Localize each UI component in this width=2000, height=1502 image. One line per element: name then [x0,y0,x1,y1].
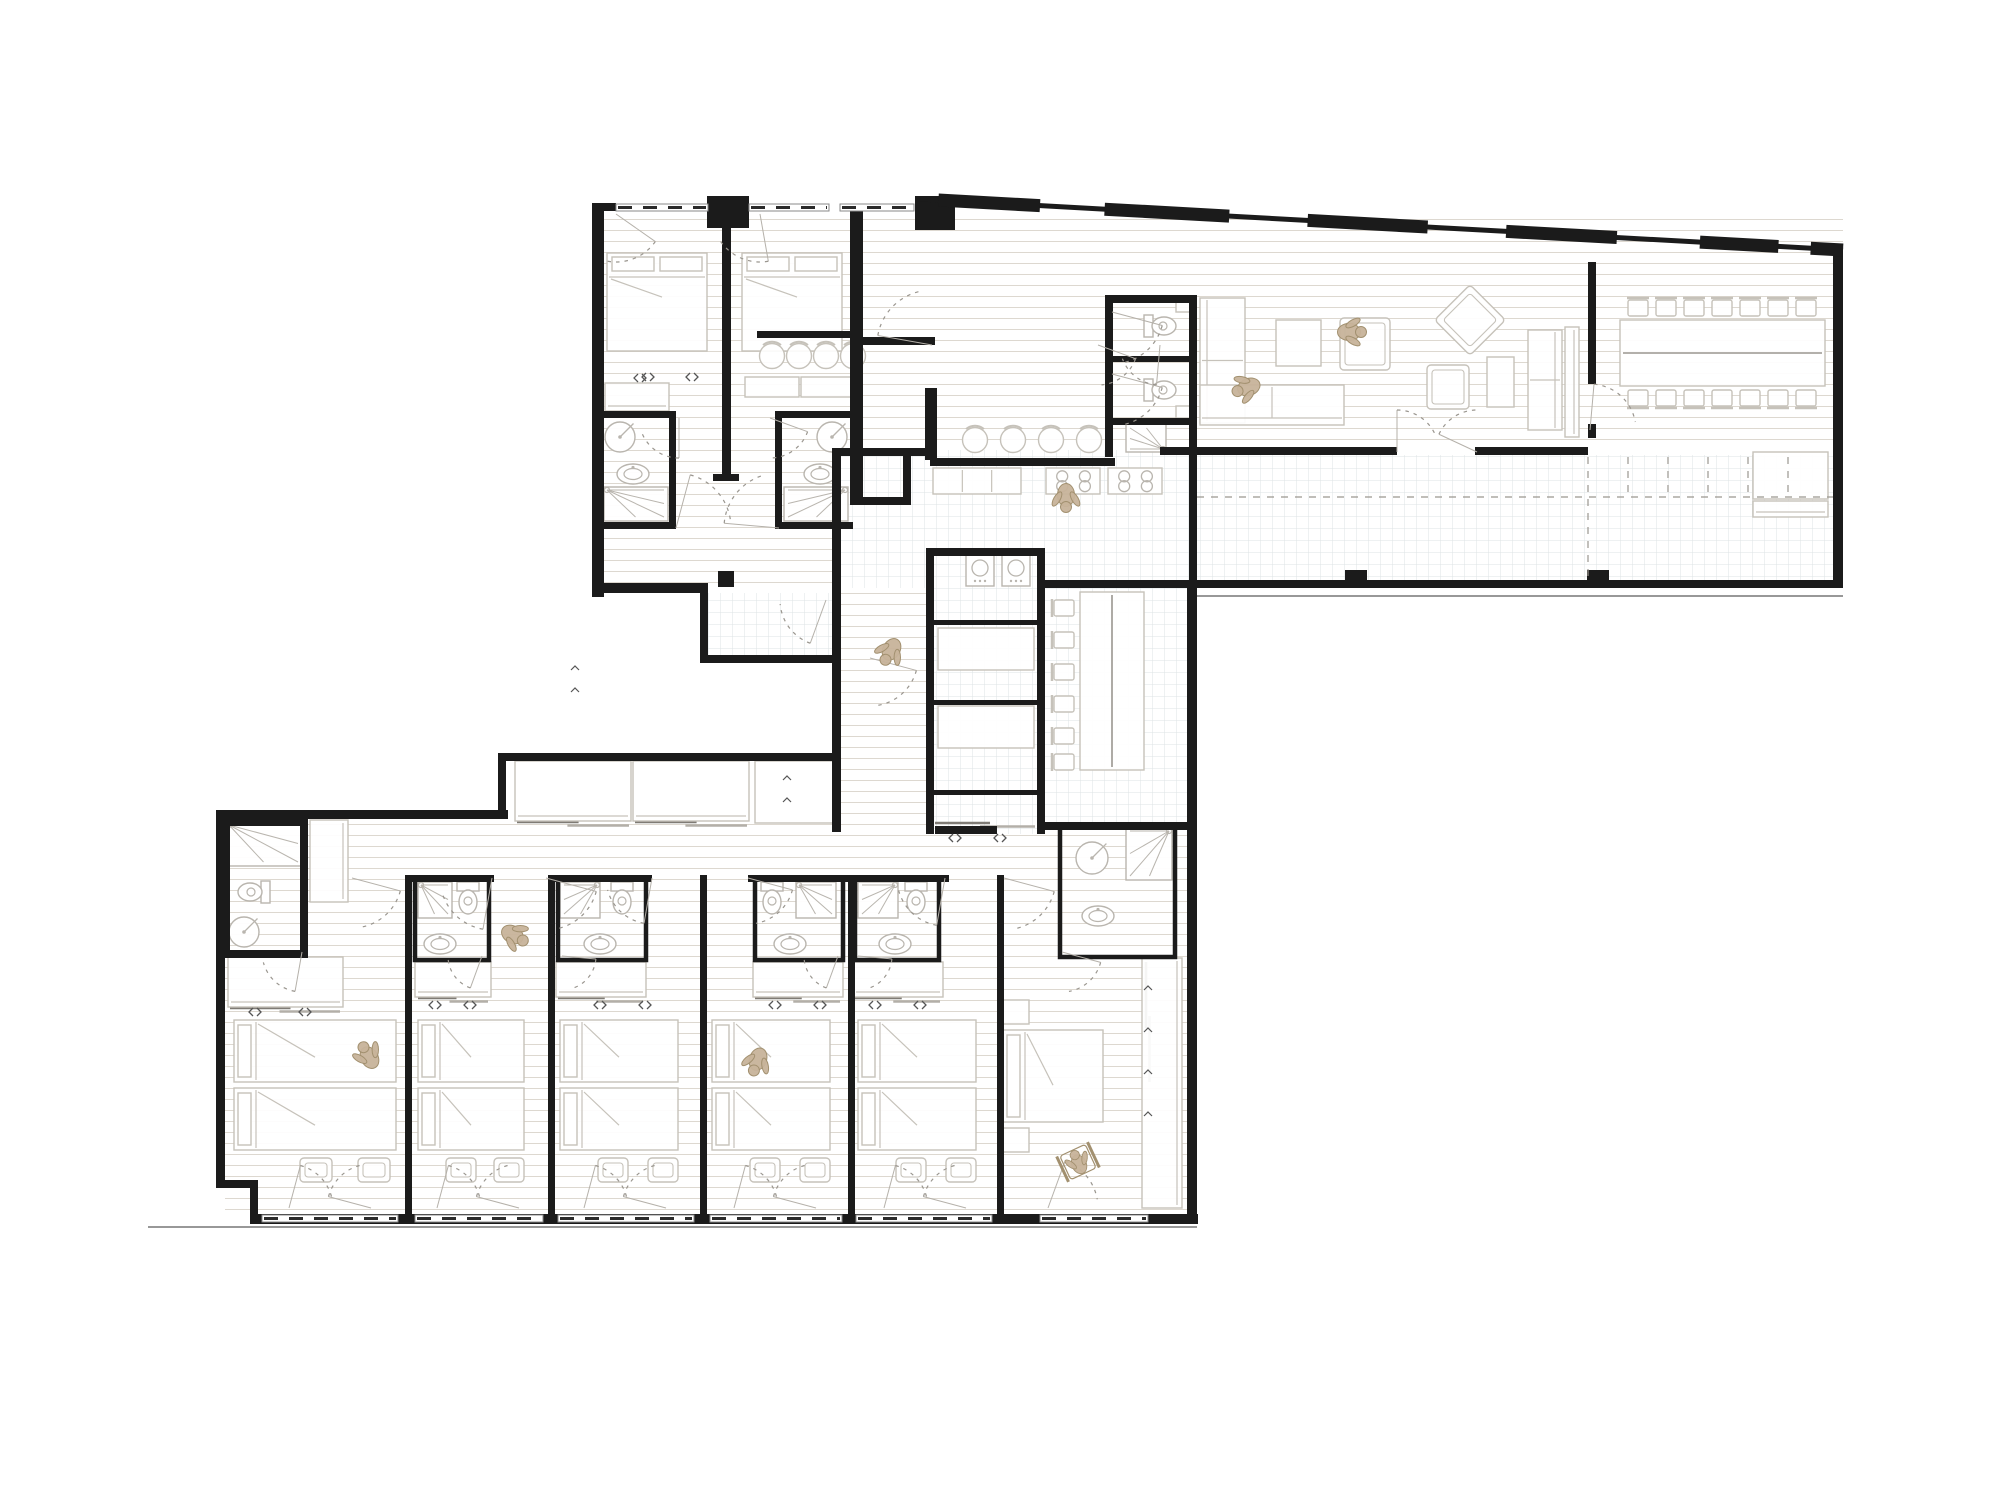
furniture-box [1276,320,1321,366]
furniture-chair [1795,298,1817,316]
furniture-chair [1739,298,1761,316]
wall [707,196,749,228]
furniture-dtable [1080,592,1144,770]
furniture-boxline [1142,958,1182,1208]
wall [548,875,555,1214]
furniture-bed [234,1088,396,1150]
furniture-boxline [605,383,669,411]
wall [300,818,308,958]
furniture-chair [1683,390,1705,408]
wall [216,810,508,819]
furniture-box [1487,357,1514,407]
furniture-boxline [228,957,343,1007]
wall [700,655,840,663]
wall [592,203,604,597]
wall [775,522,853,529]
furniture-chair [1052,753,1074,771]
furniture-boxline [1753,501,1828,517]
wall [498,753,506,815]
wall [600,411,676,418]
wall [713,474,739,481]
furniture-box [1003,1128,1029,1152]
furniture-chair [1052,631,1074,649]
furniture-armchair [1427,365,1469,409]
furniture-sofa [1528,330,1562,430]
wall [850,497,908,505]
wall [1833,247,1843,588]
furniture-shower [418,882,452,918]
furniture-bed [712,1020,830,1082]
wall [700,583,708,663]
wall [930,458,1115,466]
wall [997,875,1004,1214]
wall [1587,570,1609,580]
furniture-chair [1655,298,1677,316]
furniture-shower [604,487,668,521]
furniture-basin [774,934,806,954]
wall [1043,822,1189,830]
furniture-armchair [896,1158,926,1182]
furniture-bed [418,1088,524,1150]
furniture-chair [1052,727,1074,745]
furniture-box [801,377,855,397]
furniture-shower [1126,828,1172,880]
wall [498,753,838,761]
furniture-armchair [800,1158,830,1182]
wall [1475,447,1588,455]
furniture-bed [1003,1030,1103,1122]
furniture-box [1003,1000,1029,1024]
furniture-cooktop [1108,468,1162,494]
wall [1345,570,1367,580]
furniture-bed [858,1020,976,1082]
furniture-armchair [598,1158,628,1182]
wall [718,571,734,587]
furniture-chair [1767,390,1789,408]
furniture-boxline [415,962,491,997]
wall [848,875,855,1214]
wall [222,818,308,826]
wall [405,875,412,1214]
furniture-boxline [310,820,348,902]
furniture-bed [560,1088,678,1150]
furniture-chair [1052,663,1074,681]
wall [853,875,949,882]
furniture-chair [1655,390,1677,408]
wall [838,448,933,456]
furniture-chair [1627,390,1649,408]
furniture-armchair [648,1158,678,1182]
furniture-sink [1076,842,1108,874]
furniture-counter [933,468,1021,494]
wall [1189,295,1197,588]
wall [722,228,731,480]
furniture-chair [1795,390,1817,408]
furniture-toilet [611,882,633,914]
furniture-chair [1627,298,1649,316]
furniture-armchair [946,1158,976,1182]
wall [1187,580,1197,1224]
furniture-utilsink [966,554,994,586]
wall [775,411,782,529]
furniture-basin [424,934,456,954]
wall [832,448,841,832]
wall [700,875,707,1214]
wall [1588,262,1596,384]
furniture-bed [418,1020,524,1082]
furniture-chair [1683,298,1705,316]
furniture-utilsink [1002,554,1030,586]
wall [926,548,1045,556]
furniture-toilet [238,881,270,903]
furniture-armchair [300,1158,332,1182]
furniture-toilet [1144,315,1176,337]
wall [412,875,494,882]
furniture-bed [560,1020,678,1082]
wall [930,620,1037,625]
furniture-armchair [358,1158,390,1182]
furniture-sofa [1200,385,1344,425]
wall [592,203,616,211]
wall [775,411,853,418]
furniture-shower [226,822,302,866]
furniture-boxline [633,761,749,821]
furniture-box [938,706,1034,748]
furniture-toilet [1144,379,1176,401]
furniture-chair [1767,298,1789,316]
furniture-bed [607,253,707,351]
furniture-shower [796,882,836,918]
furniture-basin [1082,906,1114,926]
furniture-boxline [556,962,646,997]
wall [930,790,1037,795]
furniture-chair [1711,298,1733,316]
furniture-chair [1739,390,1761,408]
furniture-chair [1052,695,1074,713]
furniture-boxline [515,761,631,821]
furniture-boxline [1565,327,1579,437]
furniture-box [1753,452,1828,499]
wall [1043,580,1195,588]
wall [935,826,997,834]
wall [669,411,676,529]
furniture-shower [858,882,898,918]
furniture-toilet [457,882,479,914]
wall [1105,418,1197,425]
furniture-bed [858,1088,976,1150]
furniture-dtable [1620,320,1825,386]
slant-window [1810,242,1843,257]
furniture-basin [879,934,911,954]
wall [1197,447,1397,455]
wall [1037,548,1045,834]
furniture-basin [584,934,616,954]
furniture-sink [817,422,847,452]
wall [850,205,863,503]
furniture-toilet [905,882,927,914]
wall [930,700,1037,705]
wall [748,875,850,882]
furniture-chair [1711,390,1733,408]
wall [552,875,652,882]
furniture-basin [617,464,649,484]
furniture-sink [229,917,259,947]
floor-plan-drawing [0,0,2000,1502]
furniture-boxline [853,962,943,997]
furniture-armchair [750,1158,780,1182]
wall [222,950,308,958]
floor-plan-page [0,0,2000,1502]
furniture-sink [605,422,635,452]
furniture-basin [804,464,836,484]
furniture-box [755,761,835,823]
furniture-bed [712,1088,830,1150]
wall [1105,295,1113,457]
furniture-armchair [494,1158,524,1182]
furniture-box [938,628,1034,670]
wall [592,583,708,593]
furniture-chair [1052,599,1074,617]
wall [757,331,861,338]
wall [903,448,911,505]
wall [222,818,230,958]
wall [1105,295,1197,303]
wall [600,522,676,529]
wall [1588,424,1596,438]
furniture-box [745,377,799,397]
furniture-armchair [446,1158,476,1182]
wall [1197,580,1843,588]
